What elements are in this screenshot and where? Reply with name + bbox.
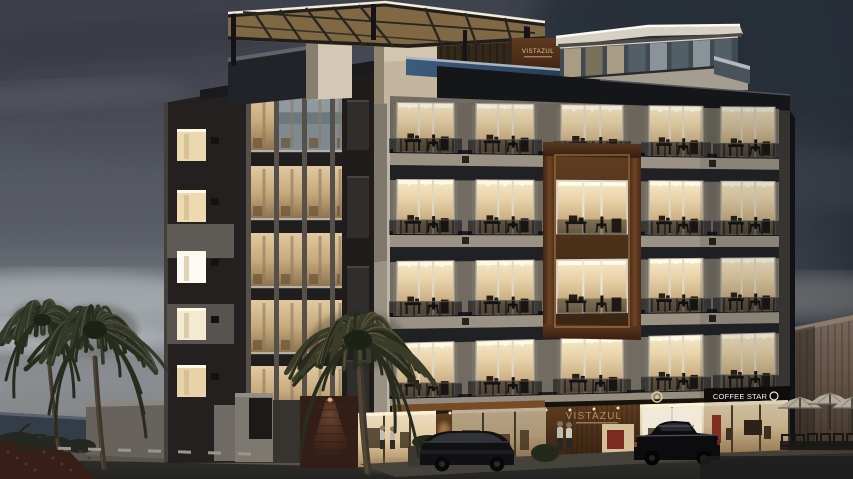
svg-text:VISTAZUL: VISTAZUL: [522, 49, 554, 55]
svg-text:COFFEE STAR: COFFEE STAR: [713, 392, 768, 401]
svg-text:VISTAZUL: VISTAZUL: [566, 411, 623, 422]
